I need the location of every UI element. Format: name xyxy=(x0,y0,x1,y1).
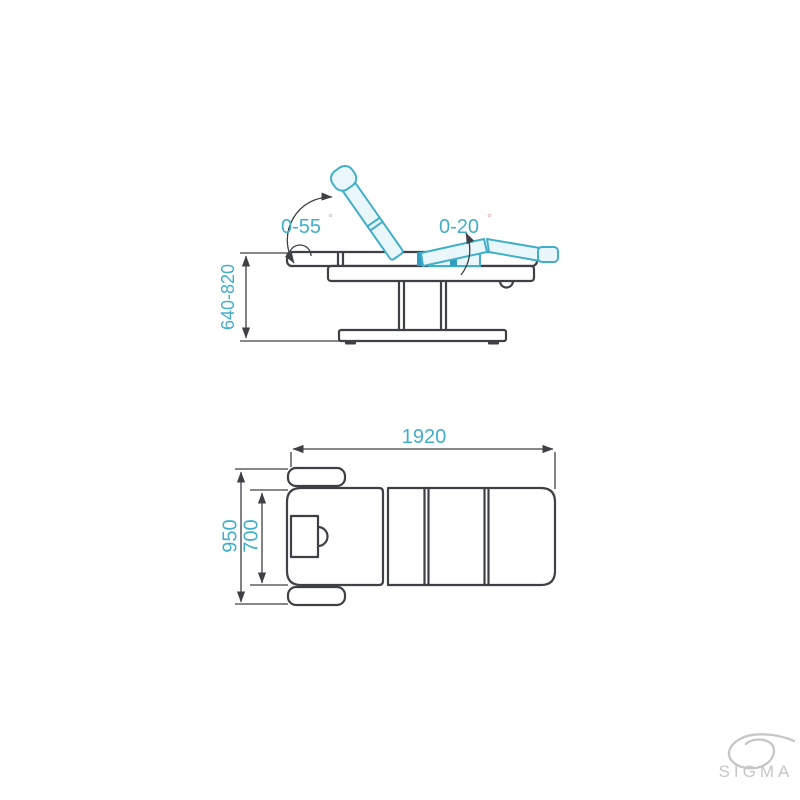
backrest-angle-label: 0-55 xyxy=(281,216,321,238)
armrest-bottom xyxy=(288,587,345,605)
side-view-diagram: 640-820 xyxy=(218,162,558,344)
sigma-logo-text: SIGMA xyxy=(719,762,794,781)
bed-width-dimension: 700 xyxy=(240,490,288,585)
base-foot xyxy=(488,341,499,345)
base-foot xyxy=(345,341,356,345)
armrest-top xyxy=(288,468,345,486)
height-dimension-label: 640-820 xyxy=(218,264,238,330)
degree-symbol: ° xyxy=(328,211,333,225)
face-cushion-pad xyxy=(291,516,318,557)
length-dimension-label: 1920 xyxy=(402,426,447,448)
overall-width-label: 950 xyxy=(219,519,241,552)
sigma-logo: SIGMA xyxy=(719,734,794,781)
top-view-diagram: 1920 950 700 xyxy=(219,426,555,605)
massage-bed-technical-drawing: 640-820 xyxy=(0,0,800,800)
degree-symbol: ° xyxy=(487,211,492,225)
pedestal-column xyxy=(399,281,446,330)
bed-width-label: 700 xyxy=(240,519,262,552)
legrest-angle-label: 0-20 xyxy=(439,216,479,238)
bed-frame xyxy=(328,266,534,281)
backrest-raised-position xyxy=(327,162,407,263)
legrest-end-cap xyxy=(538,247,558,262)
body-section xyxy=(388,488,555,585)
base-plate xyxy=(339,330,506,341)
diagram-page: 640-820 xyxy=(0,0,800,800)
